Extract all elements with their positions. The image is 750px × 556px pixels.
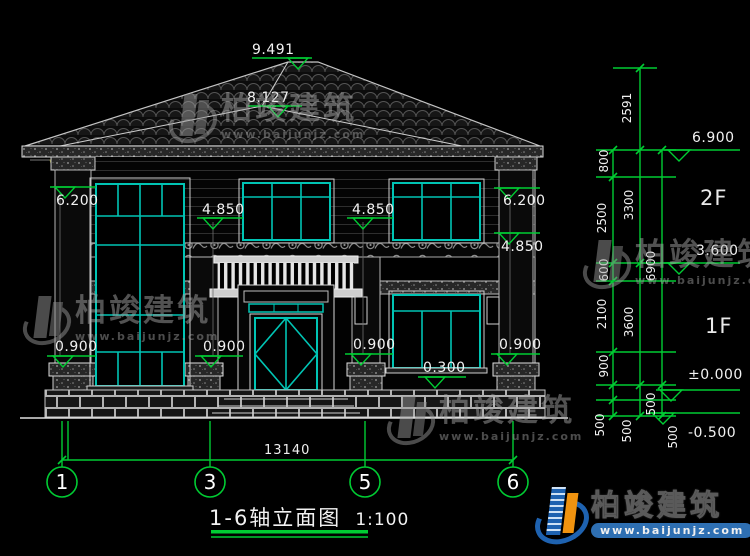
brand-logo: 柏竣建筑 www.baijunjz.com <box>536 485 750 543</box>
dim-3600: 3600 <box>622 290 636 354</box>
axis-bubble-3: 3 <box>195 470 225 494</box>
level-label-site: -0.500 <box>688 425 736 441</box>
window-stairwell <box>87 178 193 391</box>
floor-label-1f: 1F <box>705 314 732 338</box>
drawing-scale: 1:100 <box>355 510 409 530</box>
floor-label-2f: 2F <box>700 186 727 210</box>
dim-2591: 2591 <box>620 76 634 140</box>
dim-3300: 3300 <box>622 173 636 237</box>
window-2f-right <box>389 179 484 243</box>
entrance-door <box>238 285 334 395</box>
elevation-label-2f-lintel-a: 4.850 <box>202 202 245 218</box>
drawing-title: 1-6轴立面图1:100 <box>209 502 409 532</box>
elevation-label-2f-lintel-c: 4.850 <box>501 239 544 255</box>
watermark-brand: 柏竣建筑 <box>221 94 365 125</box>
dim-500-b: 500 <box>620 399 634 463</box>
brand-logo-url: www.baijunjz.com <box>591 523 750 538</box>
dim-overall-width: 13140 <box>264 443 310 458</box>
watermark: 柏竣建筑 www.baijunjz.com <box>170 92 365 142</box>
dim-500-a: 500 <box>593 393 607 457</box>
elevation-label-porch: 0.300 <box>423 360 466 376</box>
wall-vent <box>487 297 499 324</box>
axis-bubble-5: 5 <box>350 470 380 494</box>
watermark-url: www.baijunjz.com <box>221 128 365 141</box>
elevation-label-sill-d: 0.900 <box>499 337 542 353</box>
dim-900: 900 <box>597 334 611 398</box>
watermark-url: www.baijunjz.com <box>635 274 750 287</box>
window-2f-middle <box>239 179 334 243</box>
watermark-brand: 柏竣建筑 <box>439 396 583 427</box>
watermark: 柏竣建筑 www.baijunjz.com <box>24 294 219 344</box>
brand-logo-name: 柏竣建筑 <box>591 490 750 520</box>
drawing-title-text: 1-6轴立面图 <box>209 506 341 530</box>
brand-logo-icon <box>536 485 583 543</box>
dim-500-c: 500 <box>644 372 658 436</box>
watermark-logo-icon <box>388 394 432 444</box>
axis-bubble-1: 1 <box>47 470 77 494</box>
elevation-label-eave-right: 6.200 <box>503 193 546 209</box>
watermark-url: www.baijunjz.com <box>439 430 583 443</box>
elevation-label-ridge: 9.491 <box>252 42 295 58</box>
watermark-logo-icon <box>584 238 628 288</box>
level-label-ground: ±0.000 <box>688 367 743 383</box>
level-label-roof: 6.900 <box>692 130 735 146</box>
elevation-label-2f-lintel-b: 4.850 <box>352 202 395 218</box>
dim-500-d: 500 <box>666 405 680 469</box>
axis-bubble-6: 6 <box>498 470 528 494</box>
dim-800: 800 <box>597 129 611 193</box>
elevation-sheet: 9.491 8.127 6.200 4.850 4.850 6.200 4.85… <box>0 0 750 556</box>
watermark-logo-icon <box>170 92 214 142</box>
wall-vent <box>355 297 367 324</box>
watermark: 柏竣建筑 www.baijunjz.com <box>388 394 583 444</box>
watermark-brand: 柏竣建筑 <box>635 240 750 271</box>
elevation-label-eave-left: 6.200 <box>56 193 99 209</box>
watermark-brand: 柏竣建筑 <box>75 296 219 327</box>
watermark: 柏竣建筑 www.baijunjz.com <box>584 238 750 288</box>
elevation-label-sill-c: 0.900 <box>353 337 396 353</box>
watermark-logo-icon <box>24 294 68 344</box>
watermark-url: www.baijunjz.com <box>75 330 219 343</box>
